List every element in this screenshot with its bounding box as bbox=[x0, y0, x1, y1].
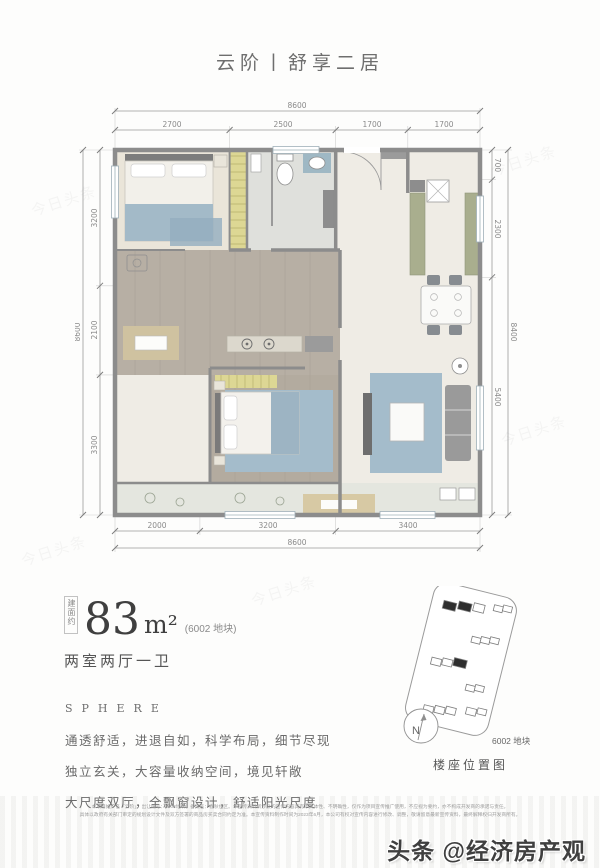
area-value: 83 bbox=[84, 600, 140, 640]
toilet-icon bbox=[277, 154, 293, 161]
nightstand bbox=[214, 456, 225, 465]
dim-right-3: 5400 bbox=[493, 387, 502, 406]
window-icon bbox=[112, 166, 119, 218]
ac-unit-icon bbox=[459, 488, 475, 500]
wardrobe-closet bbox=[230, 150, 247, 250]
dim-bottom-2: 3200 bbox=[258, 521, 277, 530]
location-svg: N 6002 地块 bbox=[388, 586, 553, 756]
dim-left-1: 3200 bbox=[90, 208, 99, 227]
dim-left-2: 2100 bbox=[90, 320, 99, 339]
washbasin-icon bbox=[309, 157, 325, 169]
tv-cabinet-icon bbox=[363, 393, 372, 455]
page-title: 云阶丨舒享二居 bbox=[0, 48, 600, 75]
dim-right-total: 8400 bbox=[509, 322, 518, 341]
description-line: 独立玄关，大容量收纳空间，境见轩敞 bbox=[65, 757, 331, 788]
dim-bottom-total: 8600 bbox=[287, 538, 306, 547]
stove-counter-icon bbox=[227, 336, 333, 352]
balcony-floor bbox=[115, 483, 480, 515]
dim-top-total: 8600 bbox=[287, 101, 306, 110]
dim-right-2: 2300 bbox=[493, 219, 502, 238]
tagline-sphere: SPHERE bbox=[65, 702, 168, 715]
location-diagram: N 6002 地块 bbox=[388, 586, 553, 776]
nightstand bbox=[214, 381, 225, 390]
coffee-table-icon bbox=[390, 403, 424, 441]
description-line: 通透舒适，进退自如，科学布局，细节尽现 bbox=[65, 726, 331, 757]
dim-left-total: 8600 bbox=[75, 322, 82, 341]
window-icon bbox=[477, 196, 484, 242]
channel-watermark: 头条 @经济房产观 bbox=[387, 832, 586, 866]
floorplan: 8600 2700 2500 1700 1700 8600 2000 3200 … bbox=[75, 98, 535, 568]
disclaimer-line: 本项目推广名「云阶」，出让编号：6002地块，备案名：春秋住区。本宣传资料所涉及… bbox=[67, 803, 533, 811]
floorplan-svg: 8600 2700 2500 1700 1700 8600 2000 3200 … bbox=[75, 98, 535, 568]
dim-top-4: 1700 bbox=[434, 120, 453, 129]
bed2-icon bbox=[125, 154, 227, 246]
ac-unit-icon bbox=[440, 488, 456, 500]
shower-icon bbox=[251, 154, 261, 172]
unit-info: 建面约 83 m² (6002 地块) 两室两厅一卫 bbox=[64, 596, 236, 671]
window-icon bbox=[477, 386, 484, 450]
dim-right-1: 700 bbox=[493, 158, 502, 173]
compass: N bbox=[404, 709, 438, 743]
bed-headboard bbox=[215, 393, 221, 453]
layout-label: 两室两厅一卫 bbox=[64, 650, 236, 671]
area-unit: m² bbox=[144, 610, 178, 640]
flyer-page: 今日头条 今日头条 今日头条 今日头条 今日头条 云阶丨舒享二居 bbox=[0, 0, 600, 868]
area-prefix-badge: 建面约 bbox=[64, 596, 78, 634]
parcel-label: 6002 地块 bbox=[492, 736, 531, 746]
window-icon bbox=[273, 147, 319, 154]
dim-top-1: 2700 bbox=[162, 120, 181, 129]
window-icon bbox=[380, 512, 435, 519]
location-caption: 楼座位置图 bbox=[388, 756, 553, 773]
dim-bottom-3: 3400 bbox=[398, 521, 417, 530]
disclaimer-line: 具体以政府有关部门审定的规划设计文件及双方签署的商品房买卖合同约定为准。本宣传资… bbox=[67, 811, 533, 819]
dim-bottom-1: 2000 bbox=[147, 521, 166, 530]
compass-n-label: N bbox=[412, 725, 420, 737]
texture-watermark: 今日头条 bbox=[248, 570, 319, 611]
entry-door-gap bbox=[344, 147, 380, 153]
dim-top-3: 1700 bbox=[362, 120, 381, 129]
sofa-icon bbox=[445, 385, 471, 461]
area-note: (6002 地块) bbox=[185, 620, 237, 640]
window-icon bbox=[225, 512, 295, 519]
disclaimer: 本项目推广名「云阶」，出让编号：6002地块，备案名：春秋住区。本宣传资料所涉及… bbox=[67, 803, 533, 818]
dim-left-3: 3300 bbox=[90, 435, 99, 454]
dim-top-2: 2500 bbox=[273, 120, 292, 129]
